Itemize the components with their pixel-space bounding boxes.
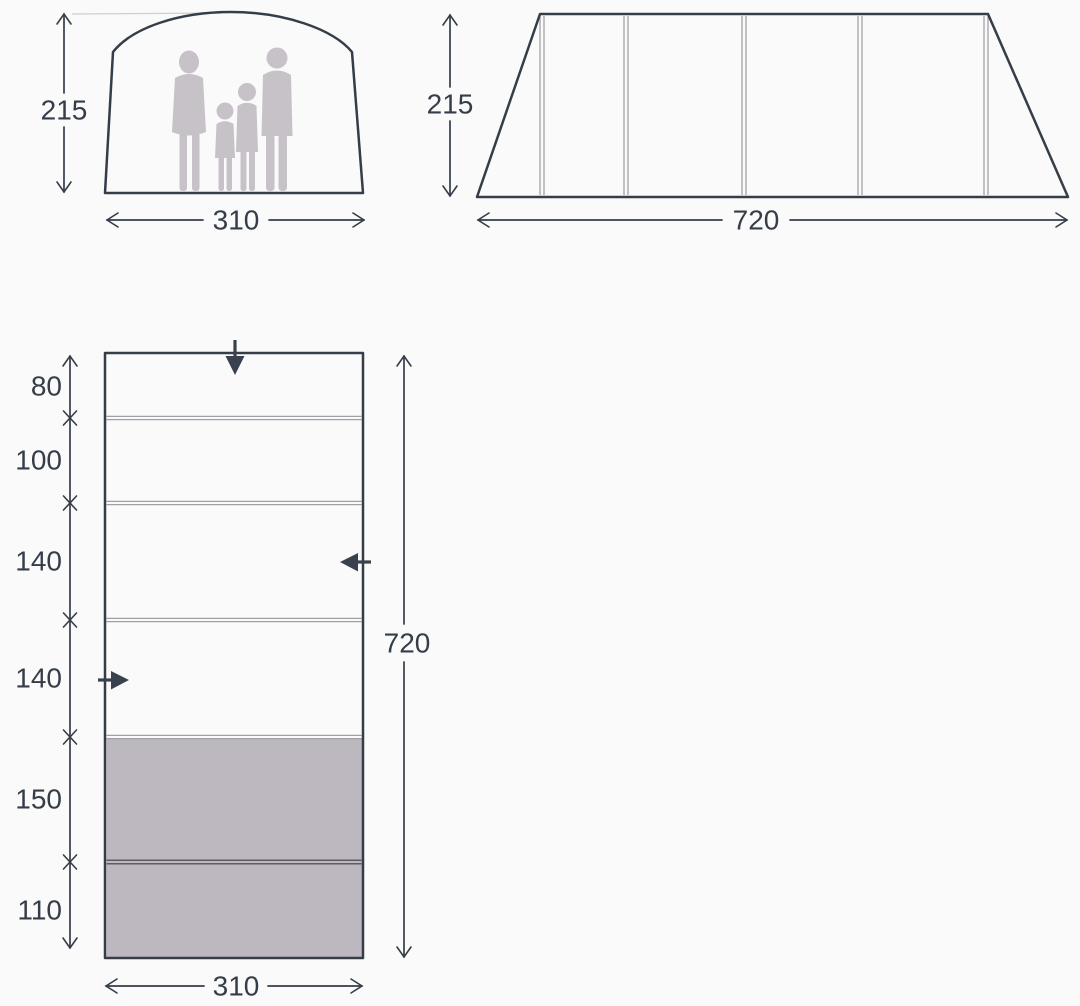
front-tent-outline (105, 12, 363, 193)
side-view: 215 720 (427, 14, 1068, 236)
side-length-label: 720 (733, 205, 780, 236)
room-dividers (107, 416, 362, 738)
front-height-dimension: 215 (41, 14, 88, 192)
diagram-canvas: 215 310 215 (0, 0, 1080, 1006)
segment-label-140a: 140 (15, 546, 62, 577)
side-tent-outline (477, 14, 1068, 197)
right-entrance-arrow-icon (340, 553, 371, 572)
plan-total-length-dimension: 720 (384, 356, 431, 957)
segment-label-110: 110 (17, 895, 62, 926)
family-silhouette (172, 48, 293, 192)
tent-pole-lines (540, 16, 988, 195)
entrance-arrows (98, 340, 371, 690)
shaded-rooms (107, 738, 363, 957)
plan-total-length-label: 720 (384, 628, 431, 659)
front-view: 215 310 (41, 12, 364, 236)
segment-label-140b: 140 (15, 663, 62, 694)
plan-width-label: 310 (213, 971, 260, 1002)
side-height-label: 215 (427, 89, 474, 120)
boy-silhouette (236, 83, 258, 191)
left-entrance-arrow-icon (98, 671, 129, 690)
floor-plan: 80 100 140 140 150 110 720 310 (15, 340, 430, 1002)
woman-silhouette (172, 51, 206, 192)
girl-silhouette (215, 103, 235, 192)
side-length-dimension: 720 (478, 205, 1067, 236)
segment-label-80: 80 (31, 371, 62, 402)
segment-dimension-line: 80 100 140 140 150 110 (15, 356, 77, 948)
front-width-dimension: 310 (107, 205, 364, 236)
front-height-label: 215 (41, 95, 88, 126)
segment-label-100: 100 (15, 445, 62, 476)
front-width-label: 310 (213, 205, 260, 236)
tent-dimension-diagram: 215 310 215 (0, 0, 1080, 1006)
plan-width-dimension: 310 (106, 971, 362, 1002)
man-silhouette (262, 48, 293, 192)
top-entrance-arrow-icon (226, 340, 245, 375)
side-height-dimension: 215 (427, 15, 474, 196)
segment-label-150: 150 (15, 784, 62, 815)
